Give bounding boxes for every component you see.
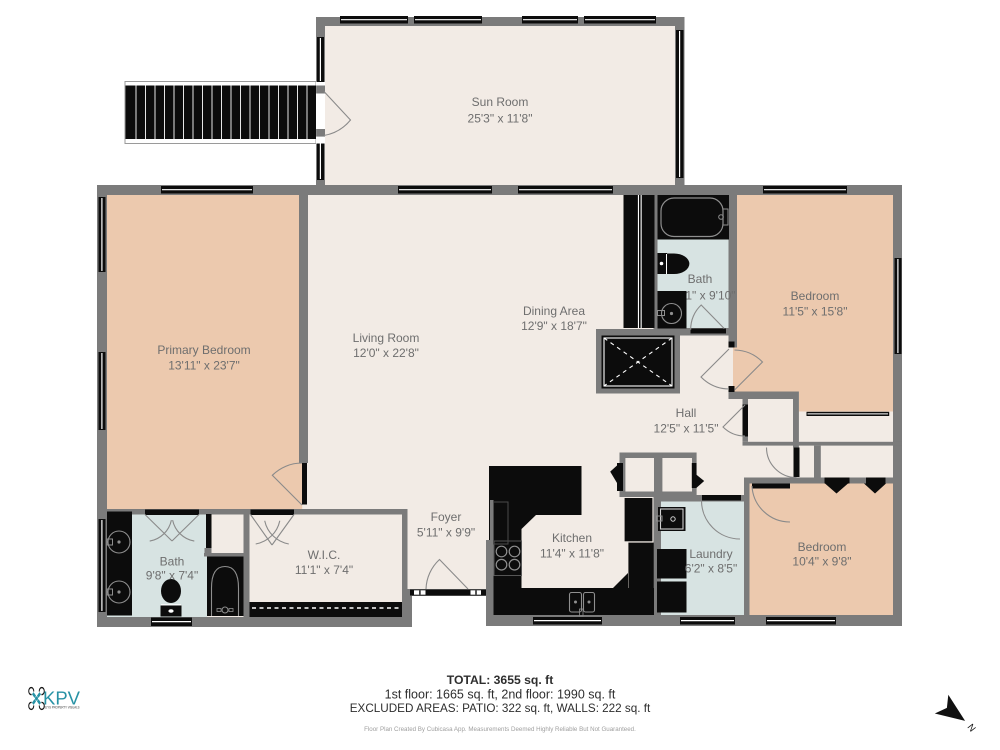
svg-text:11'5" x 15'8": 11'5" x 15'8" [783, 305, 848, 319]
svg-text:Foyer: Foyer [431, 510, 462, 524]
svg-text:EXCLUDED AREAS: PATIO: 322 sq.: EXCLUDED AREAS: PATIO: 322 sq. ft, WALLS… [350, 702, 651, 715]
svg-text:12'9" x 18'7": 12'9" x 18'7" [521, 319, 587, 333]
svg-text:25'3" x 11'8": 25'3" x 11'8" [468, 112, 533, 126]
svg-text:11'1" x 7'4": 11'1" x 7'4" [295, 563, 353, 577]
svg-text:11'4" x 11'8": 11'4" x 11'8" [540, 547, 604, 561]
svg-text:12'5" x 11'5": 12'5" x 11'5" [654, 422, 719, 436]
svg-text:6'2" x 8'5": 6'2" x 8'5" [685, 562, 737, 576]
svg-text:Sun Room: Sun Room [472, 95, 529, 109]
svg-text:KEYS PROPERTY VISUALS: KEYS PROPERTY VISUALS [44, 705, 80, 709]
svg-text:Living Room: Living Room [353, 331, 420, 345]
svg-text:Bedroom: Bedroom [791, 289, 840, 303]
svg-text:Bedroom: Bedroom [798, 540, 847, 554]
svg-text:Kitchen: Kitchen [552, 531, 592, 545]
svg-text:W.I.C.: W.I.C. [308, 548, 341, 562]
svg-text:1st floor: 1665 sq. ft, 2nd fl: 1st floor: 1665 sq. ft, 2nd floor: 1990 … [385, 688, 616, 702]
svg-text:Dining Area: Dining Area [523, 304, 585, 318]
svg-text:5'11" x 9'9": 5'11" x 9'9" [417, 526, 475, 540]
svg-text:Primary Bedroom: Primary Bedroom [157, 343, 250, 357]
svg-text:TOTAL: 3655 sq. ft: TOTAL: 3655 sq. ft [447, 673, 554, 687]
svg-text:Bath: Bath [688, 272, 713, 286]
svg-text:Hall: Hall [676, 406, 697, 420]
svg-text:Floor Plan Created By Cubicasa: Floor Plan Created By Cubicasa App. Meas… [364, 726, 636, 733]
svg-text:Laundry: Laundry [689, 547, 732, 561]
svg-text:12'0" x 22'8": 12'0" x 22'8" [353, 346, 419, 360]
svg-text:Bath: Bath [160, 555, 185, 569]
svg-text:10'4" x 9'8": 10'4" x 9'8" [792, 555, 851, 569]
svg-text:9'8" x 7'4": 9'8" x 7'4" [146, 569, 198, 583]
svg-text:13'11" x 23'7": 13'11" x 23'7" [168, 359, 240, 373]
